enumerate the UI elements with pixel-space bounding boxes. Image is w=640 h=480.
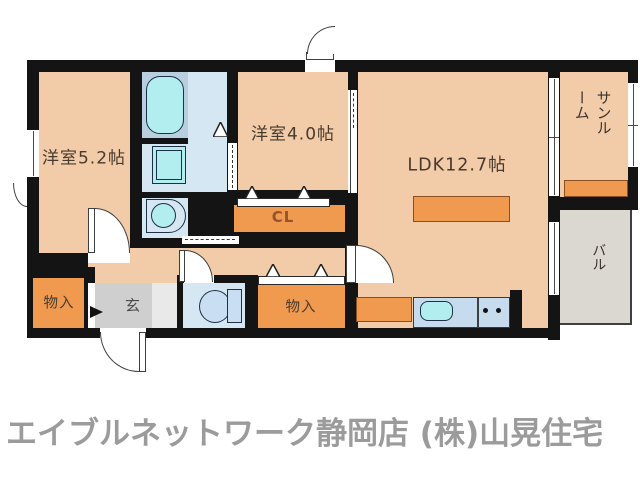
washroom-yoshitsu40-door xyxy=(228,143,237,190)
top-doorway xyxy=(305,60,335,72)
ldk-table xyxy=(413,196,510,222)
entrance-floor xyxy=(95,283,152,328)
stove-burner-icon xyxy=(496,308,501,313)
entrance-step-floor xyxy=(152,283,177,328)
room-label-yoshitsu52: 洋室5.2帖 xyxy=(42,144,126,169)
room-label-sunroom: サンル ーム xyxy=(570,90,614,135)
kitchen-sink-icon xyxy=(420,301,453,321)
washroom-corridor-opening xyxy=(182,236,239,244)
bath-folding-door-triangle-icon xyxy=(213,122,228,137)
kitchen-side-wall xyxy=(510,290,522,328)
washing-machine-inner xyxy=(156,150,182,180)
yoshitsu52-window xyxy=(27,130,39,177)
folding-door-triangle-icon xyxy=(314,264,328,277)
room-label-balcony: バル xyxy=(588,243,608,271)
kitchen-counter-left xyxy=(356,297,412,322)
folding-door-triangle-icon xyxy=(297,186,311,199)
toilet-tank xyxy=(227,289,242,323)
top-door-swing xyxy=(307,26,335,54)
entrance-door-swing xyxy=(100,332,139,372)
storage-right-door-strip xyxy=(258,276,345,285)
storage-left-top-wall xyxy=(27,267,88,278)
washing-machine-pan-icon xyxy=(152,146,186,184)
floorplan-canvas: 洋室5.2帖 洋室4.0帖 LDK12.7帖 サンル ーム CL 物入 玄 物入… xyxy=(0,0,640,480)
kitchen-counter-divider xyxy=(477,297,479,328)
entrance-door-leaf xyxy=(139,332,146,372)
yoshitsu52-doorway xyxy=(88,253,130,263)
room-label-ldk: LDK12.7帖 xyxy=(407,152,506,177)
folding-door-triangle-icon xyxy=(245,186,259,199)
sunroom-window xyxy=(628,83,638,167)
bathtub-icon xyxy=(146,76,184,134)
washbasin-icon xyxy=(146,199,186,233)
yoshitsu52-door-leaf xyxy=(88,208,95,253)
closet-door-strip xyxy=(237,198,330,207)
footer-brand-text: エイブルネットワーク静岡店 (株)山晃住宅 xyxy=(6,408,603,453)
folding-door-triangle-icon xyxy=(266,264,280,277)
room-label-storage-left: 物入 xyxy=(44,292,75,313)
ldk-balcony-window xyxy=(549,222,559,295)
room-label-yoshitsu40: 洋室4.0帖 xyxy=(251,120,335,145)
room-label-entrance: 玄 xyxy=(125,295,141,316)
washbasin-bowl xyxy=(151,203,176,228)
yoshitsu40-ldk-sliding-door xyxy=(348,90,357,193)
sunroom-counter xyxy=(564,180,628,197)
room-label-closet: CL xyxy=(272,208,295,226)
stove-burner-icon xyxy=(483,308,488,313)
left-casement-swing xyxy=(13,183,27,207)
toilet-storage-wall xyxy=(245,275,258,328)
ldk-door-leaf xyxy=(346,245,356,283)
entry-step-arrow-icon xyxy=(90,306,103,318)
room-label-storage-right: 物入 xyxy=(286,296,317,317)
entrance-toilet-wall xyxy=(177,283,183,328)
ldk-sunroom-glass-door xyxy=(549,78,559,196)
